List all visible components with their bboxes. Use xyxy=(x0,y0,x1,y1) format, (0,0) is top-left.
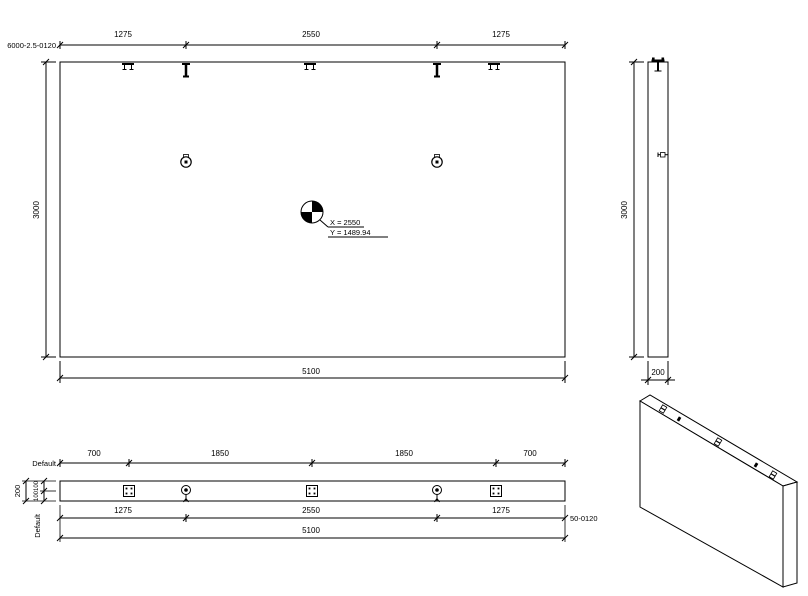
element-mark-label: 6000-2.5-0120 xyxy=(7,41,56,50)
side-view: 3000 200 xyxy=(620,58,675,386)
dim-text: 100 xyxy=(34,490,40,501)
dim-text: 1275 xyxy=(114,506,132,515)
panel-edge-face-3d xyxy=(783,482,797,587)
dim-text: 100 xyxy=(34,480,40,491)
default-layer-label: Default xyxy=(32,459,57,468)
front-view: 1275 2550 1275 6000-2.5-0120 3000 5100 xyxy=(7,30,568,383)
cog-y-label: Y = 1489.94 xyxy=(330,228,371,237)
dim-text: 3000 xyxy=(32,201,41,219)
dim-text: 700 xyxy=(87,449,101,458)
dim-text: 1850 xyxy=(395,449,413,458)
panel-shop-drawing: 1275 2550 1275 6000-2.5-0120 3000 5100 xyxy=(0,0,808,596)
dim-text: 1275 xyxy=(492,506,510,515)
front-width-dimension: 5100 xyxy=(57,361,568,383)
panel-side-face xyxy=(648,62,668,357)
dim-text: 3000 xyxy=(620,201,629,219)
plan-mid-dimension: 1275 2550 1275 50-0120 xyxy=(57,505,598,542)
plan-thickness-dimension: 200 100 100 Default xyxy=(13,478,56,538)
plan-top-dimension: 700 1850 1850 700 Default xyxy=(32,449,568,468)
panel-plan-face xyxy=(60,481,565,501)
dim-text: 2550 xyxy=(302,506,320,515)
dim-text: 5100 xyxy=(302,526,320,535)
dim-text: 1850 xyxy=(211,449,229,458)
dim-text: 700 xyxy=(523,449,537,458)
dim-text: 2550 xyxy=(302,30,320,39)
element-mark-label: 50-0120 xyxy=(570,514,598,523)
dim-text: 1275 xyxy=(492,30,510,39)
cad-drawing-canvas: 1275 2550 1275 6000-2.5-0120 3000 5100 xyxy=(0,0,808,596)
dim-text: 5100 xyxy=(302,367,320,376)
plan-view: 700 1850 1850 700 Default xyxy=(13,449,598,542)
cog-x-label: X = 2550 xyxy=(330,218,360,227)
plan-total-dimension: 5100 xyxy=(57,526,568,541)
front-height-dimension: 3000 xyxy=(32,59,56,360)
dim-text: 1275 xyxy=(114,30,132,39)
cog-icon xyxy=(301,201,323,223)
dim-text: 200 xyxy=(651,368,665,377)
panel-front-face-3d xyxy=(640,401,783,587)
default-layer-label: Default xyxy=(33,513,42,538)
side-height-dimension: 3000 xyxy=(620,59,644,360)
side-thickness-dimension: 200 xyxy=(641,361,675,385)
iso-view xyxy=(640,395,797,587)
front-top-dimension: 1275 2550 1275 6000-2.5-0120 xyxy=(7,30,568,50)
dim-text: 200 xyxy=(13,485,22,498)
